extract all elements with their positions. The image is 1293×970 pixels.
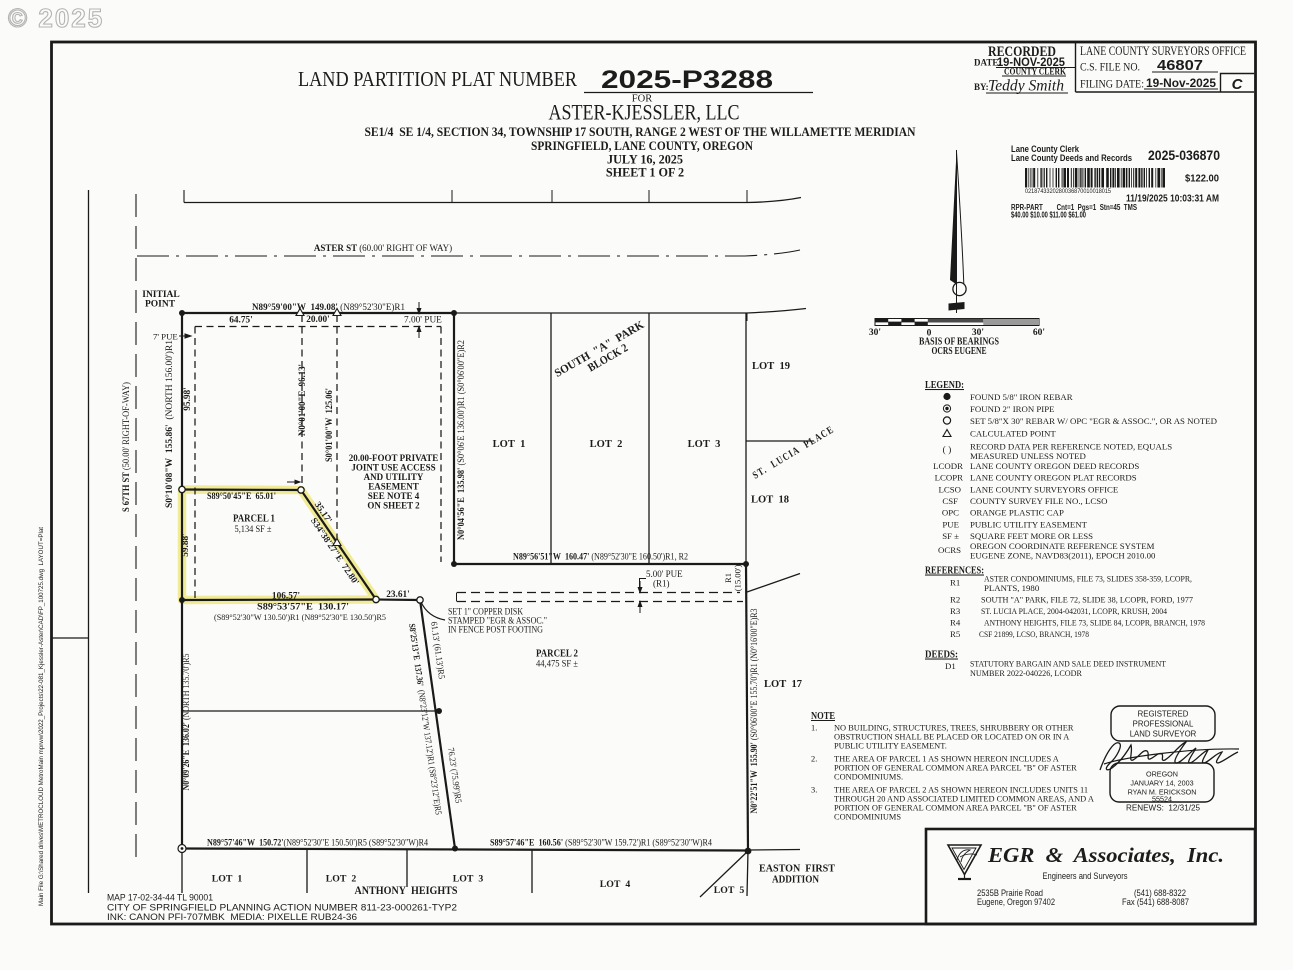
svg-text:IN FENCE POST FOOTING: IN FENCE POST FOOTING [448, 625, 543, 635]
svg-text:R5: R5 [950, 629, 961, 639]
svg-text:( ): ( ) [943, 445, 952, 456]
svg-text:OCRS: OCRS [938, 545, 961, 555]
svg-text:2.: 2. [811, 755, 817, 764]
svg-text:1.: 1. [811, 724, 817, 733]
svg-text:3.: 3. [811, 786, 817, 795]
svg-text:LANE COUNTY OREGON DEED RECORD: LANE COUNTY OREGON DEED RECORDS [970, 461, 1139, 471]
svg-text:AND UTILITY: AND UTILITY [364, 472, 424, 482]
svg-text:JANUARY 14, 2003: JANUARY 14, 2003 [1130, 779, 1193, 788]
svg-text:S34°38'27"E 72.80': S34°38'27"E 72.80' [308, 516, 361, 588]
svg-text:FOUND 5/8" IRON REBAR: FOUND 5/8" IRON REBAR [970, 392, 1073, 402]
svg-text:COUNTY SURVEY FILE NO., LCSO: COUNTY SURVEY FILE NO., LCSO [970, 496, 1107, 506]
svg-text:PORTION OF GENERAL COMMON AREA: PORTION OF GENERAL COMMON AREA PARCEL "B… [834, 804, 1077, 813]
svg-text:5,134 SF ±: 5,134 SF ± [235, 525, 272, 535]
svg-text:RENEWS: 12/31/25: RENEWS: 12/31/25 [1126, 803, 1200, 813]
svg-text:Eugene, Oregon 97402: Eugene, Oregon 97402 [977, 897, 1055, 908]
svg-text:CONDOMINIUMS.: CONDOMINIUMS. [834, 773, 903, 782]
svg-text:R1: R1 [723, 573, 733, 583]
svg-text:PLANTS, 1980: PLANTS, 1980 [984, 583, 1040, 593]
svg-text:S0°10'08"W 155.86' (NORTH 15: S0°10'08"W 155.86' (NORTH 156.00')R1 [164, 340, 175, 508]
svg-text:ANTHONY HEIGHTS: ANTHONY HEIGHTS [355, 885, 458, 897]
svg-text:LCODR: LCODR [933, 461, 963, 471]
svg-text:LANE COUNTY SURVEYORS OFFICE: LANE COUNTY SURVEYORS OFFICE [970, 484, 1118, 494]
svg-text:S89°57'46"E 160.56' (S89°52'3: S89°57'46"E 160.56' (S89°52'30"W 159.72'… [490, 838, 712, 849]
svg-text:© 2025: © 2025 [8, 3, 104, 33]
svg-text:ASTER-KJESSLER, LLC: ASTER-KJESSLER, LLC [549, 100, 740, 125]
svg-text:C.S. FILE NO.: C.S. FILE NO. [1080, 60, 1140, 74]
svg-text:FOUND 2" IRON PIPE: FOUND 2" IRON PIPE [970, 404, 1054, 414]
svg-text:N89°59'00"W 149.08' (N89°52'3: N89°59'00"W 149.08' (N89°52'30"E)R1 [252, 302, 405, 313]
svg-text:DEEDS:: DEEDS: [925, 650, 958, 661]
svg-text:20.00': 20.00' [306, 315, 330, 325]
svg-text:POINT: POINT [145, 300, 176, 310]
svg-text:SOUTH "A" PARK, FILE 72, SLIDE: SOUTH "A" PARK, FILE 72, SLIDE 38, LCOPR… [981, 595, 1194, 605]
svg-text:LAND PARTITION PLAT NUMBER: LAND PARTITION PLAT NUMBER [298, 67, 578, 91]
svg-text:$122.00: $122.00 [1185, 173, 1219, 185]
svg-text:SET 5/8"X 30" REBAR W/ OPC "EG: SET 5/8"X 30" REBAR W/ OPC "EGR & ASSOC.… [970, 416, 1217, 426]
svg-text:0218743320280036870010018015: 0218743320280036870010018015 [1025, 189, 1112, 195]
svg-text:LCOPR: LCOPR [935, 473, 963, 483]
svg-text:EASTON FIRST: EASTON FIRST [759, 864, 835, 875]
svg-text:46807: 46807 [1157, 57, 1203, 74]
svg-text:JOINT USE ACCESS: JOINT USE ACCESS [351, 463, 435, 473]
svg-text:LOT 2: LOT 2 [326, 874, 357, 885]
svg-text:R2: R2 [950, 595, 960, 605]
svg-text:2025-P3288: 2025-P3288 [601, 66, 773, 94]
svg-text:LOT 4: LOT 4 [600, 879, 631, 890]
svg-text:EUGENE ZONE, NAVD83(2011), EPO: EUGENE ZONE, NAVD83(2011), EPOCH 2010.00 [970, 550, 1156, 560]
svg-text:INITIAL: INITIAL [142, 290, 180, 300]
svg-text:N89°57'46"W 150.72'(N89°52'30: N89°57'46"W 150.72'(N89°52'30"E 150.50')… [207, 838, 428, 849]
svg-text:Engineers and Surveyors: Engineers and Surveyors [1043, 871, 1128, 881]
svg-text:NO BUILDING, STRUCTURES, TREES: NO BUILDING, STRUCTURES, TREES, SHRUBBER… [834, 724, 1074, 733]
svg-text:Teddy Smith: Teddy Smith [988, 78, 1064, 95]
svg-text:LANE COUNTY SURVEYORS OFFICE: LANE COUNTY SURVEYORS OFFICE [1080, 44, 1246, 58]
svg-text:THE AREA OF PARCEL 1 AS SHOWN: THE AREA OF PARCEL 1 AS SHOWN HEREON INC… [834, 755, 1059, 764]
svg-text:20.00-FOOT PRIVATE: 20.00-FOOT PRIVATE [349, 453, 439, 463]
svg-text:PROFESSIONAL: PROFESSIONAL [1133, 720, 1194, 729]
svg-text:SQUARE FEET MORE OR LESS: SQUARE FEET MORE OR LESS [970, 531, 1093, 541]
svg-text:SEE NOTE 4: SEE NOTE 4 [368, 491, 420, 501]
svg-text:R4: R4 [950, 618, 961, 628]
svg-text:7' PUE: 7' PUE [153, 332, 178, 342]
svg-text:BY:: BY: [974, 82, 989, 92]
svg-text:(S89°52'30"W 130.50')R1 (N89°5: (S89°52'30"W 130.50')R1 (N89°52'30"E 130… [214, 612, 387, 622]
svg-text:30': 30' [869, 328, 881, 338]
svg-text:THE AREA OF PARCEL 2 AS SHOWN: THE AREA OF PARCEL 2 AS SHOWN HEREON INC… [834, 786, 1088, 795]
svg-text:S0°01'00"W 125.06': S0°01'00"W 125.06' [324, 388, 335, 462]
svg-text:N89°56'51"W 160.47' (N89°52'3: N89°56'51"W 160.47' (N89°52'30"E 160.50'… [513, 552, 688, 563]
svg-text:59.88': 59.88' [181, 533, 191, 557]
svg-text:FILING DATE:: FILING DATE: [1080, 77, 1144, 91]
svg-text:7.00' PUE: 7.00' PUE [404, 316, 442, 326]
svg-text:S89°53'57"E 130.17': S89°53'57"E 130.17' [257, 602, 349, 613]
svg-text:LAND SURVEYOR: LAND SURVEYOR [1130, 730, 1197, 739]
svg-text:N0°09'26"E 136.02' (NORTH 135: N0°09'26"E 136.02' (NORTH 135.70')R5 [181, 653, 192, 790]
svg-text:LOT 5: LOT 5 [714, 885, 745, 896]
svg-text:CONDOMINIUMS: CONDOMINIUMS [834, 813, 901, 822]
svg-text:D1: D1 [945, 661, 956, 671]
svg-text:ADDITION: ADDITION [772, 875, 819, 886]
svg-text:N0°22'51"W 155.90' (S0°06'00": N0°22'51"W 155.90' (S0°06'00"E 155.70')R… [749, 608, 760, 813]
svg-text:LEGEND:: LEGEND: [925, 380, 964, 391]
svg-text:PUE: PUE [942, 519, 959, 529]
svg-text:LOT 3: LOT 3 [453, 874, 484, 885]
svg-text:LOT 3: LOT 3 [688, 439, 721, 450]
svg-text:76.23' (75.99')R5: 76.23' (75.99')R5 [446, 747, 464, 804]
svg-text:OBSTRUCTION SHALL BE PLACED OR: OBSTRUCTION SHALL BE PLACED OR LOCATED O… [834, 733, 1069, 742]
svg-text:2025-036870: 2025-036870 [1148, 148, 1220, 163]
svg-text:R3: R3 [950, 606, 961, 616]
svg-text:ASTER ST (60.00' RIGHT OF WAY): ASTER ST (60.00' RIGHT OF WAY) [314, 243, 452, 253]
svg-text:ST. LUCIA PLACE, 2004-042031,: ST. LUCIA PLACE, 2004-042031, LCOPR, KRU… [981, 606, 1168, 616]
svg-text:PUBLIC UTILITY EASEMENT.: PUBLIC UTILITY EASEMENT. [834, 742, 947, 751]
svg-text:61.13' (61.13')R5: 61.13' (61.13')R5 [429, 621, 447, 680]
svg-text:SOUTH "A" PARK: SOUTH "A" PARK [553, 319, 647, 380]
svg-text:THROUGH 20 AND ASSOCIATED LIMI: THROUGH 20 AND ASSOCIATED LIMITED COMMON… [834, 795, 1094, 804]
svg-text:LOT 2: LOT 2 [590, 439, 623, 450]
svg-text:ANTHONY HEIGHTS, FILE 73, SLID: ANTHONY HEIGHTS, FILE 73, SLIDE 84, LCOP… [984, 618, 1206, 628]
svg-text:CITY OF SPRINGFIELD PLANNING A: CITY OF SPRINGFIELD PLANNING ACTION NUMB… [107, 903, 457, 913]
svg-text:NUMBER 2022-040226, LCODR: NUMBER 2022-040226, LCODR [970, 668, 1082, 678]
svg-text:OREGON: OREGON [1146, 770, 1178, 779]
svg-text:Lane County Deeds and Records: Lane County Deeds and Records [1011, 153, 1132, 164]
svg-text:S 67TH ST (50.00' RIGHT-OF-WAY: S 67TH ST (50.00' RIGHT-OF-WAY) [121, 382, 132, 512]
svg-text:N0°04'56"E 135.98' (S0°06'E 1: N0°04'56"E 135.98' (S0°06'E 136.00')R1 (… [456, 340, 467, 540]
svg-text:LOT 19: LOT 19 [752, 361, 790, 372]
svg-text:EGR & Associates, Inc.: EGR & Associates, Inc. [987, 843, 1224, 867]
svg-text:23.61': 23.61' [386, 590, 410, 600]
svg-text:$40.00 $10.00 $11.00 $61.00: $40.00 $10.00 $11.00 $61.00 [1011, 211, 1086, 220]
svg-text:19-Nov-2025: 19-Nov-2025 [1146, 78, 1217, 90]
svg-text:LOT 18: LOT 18 [751, 495, 789, 506]
svg-text:ORANGE PLASTIC CAP: ORANGE PLASTIC CAP [970, 508, 1064, 518]
svg-text:CALCULATED POINT: CALCULATED POINT [970, 429, 1056, 439]
svg-text:LOT 1: LOT 1 [212, 874, 243, 885]
svg-text:SPRINGFIELD, LANE COUNTY, OREG: SPRINGFIELD, LANE COUNTY, OREGON [531, 139, 753, 153]
svg-text:CSF 21899, LCSO, BRANCH, 1978: CSF 21899, LCSO, BRANCH, 1978 [979, 629, 1090, 639]
svg-text:R1: R1 [950, 578, 960, 588]
svg-text:64.75': 64.75' [229, 316, 253, 326]
svg-text:N0°01'00"E 96.13': N0°01'00"E 96.13' [297, 364, 308, 436]
svg-text:INK: CANON PFI-707MBK MEDIA:: INK: CANON PFI-707MBK MEDIA: PIXELLE RUB… [107, 912, 357, 922]
svg-text:(15.00'): (15.00') [733, 565, 743, 592]
svg-text:SHEET 1 OF 2: SHEET 1 OF 2 [606, 166, 684, 180]
svg-text:JULY 16, 2025: JULY 16, 2025 [607, 153, 683, 167]
svg-text:S89°50'45"E 65.01': S89°50'45"E 65.01' [207, 491, 276, 502]
svg-text:ON SHEET 2: ON SHEET 2 [367, 501, 420, 511]
svg-text:60': 60' [1033, 328, 1045, 338]
svg-text:NOTE: NOTE [811, 711, 835, 722]
svg-text:PARCEL 1: PARCEL 1 [233, 514, 275, 525]
svg-text:CSF: CSF [942, 496, 958, 506]
svg-text:5.00' PUE: 5.00' PUE [646, 569, 683, 579]
svg-text:EASEMENT: EASEMENT [368, 482, 419, 492]
svg-text:SE1/4 SE 1/4, SECTION 34, TOW: SE1/4 SE 1/4, SECTION 34, TOWNSHIP 17 SO… [365, 125, 916, 139]
svg-text:LOT 1: LOT 1 [493, 439, 526, 450]
svg-text:ST. LUCIA PLACE: ST. LUCIA PLACE [751, 424, 836, 481]
svg-text:REFERENCES:: REFERENCES: [925, 566, 984, 577]
svg-text:OCRS EUGENE: OCRS EUGENE [932, 346, 987, 357]
svg-text:SF ±: SF ± [942, 531, 959, 541]
svg-text:PUBLIC UTILITY EASEMENT: PUBLIC UTILITY EASEMENT [970, 519, 1088, 529]
svg-text:REGISTERED: REGISTERED [1138, 710, 1189, 719]
svg-text:MAP 17-02-34-44 TL 90001: MAP 17-02-34-44 TL 90001 [107, 893, 213, 903]
svg-text:Main File G:\Shared drives\MET: Main File G:\Shared drives\METROCLOUD Me… [38, 527, 45, 906]
svg-text:PORTION OF GENERAL COMMON AREA: PORTION OF GENERAL COMMON AREA PARCEL "B… [834, 764, 1077, 773]
svg-text:C: C [1232, 76, 1244, 93]
svg-text:95.98': 95.98' [183, 387, 193, 411]
svg-text:11/19/2025 10:03:31 AM: 11/19/2025 10:03:31 AM [1126, 194, 1219, 205]
svg-text:44,475 SF ±: 44,475 SF ± [536, 660, 578, 670]
svg-text:106.57': 106.57' [272, 592, 300, 602]
svg-text:LANE COUNTY OREGON PLAT RECORD: LANE COUNTY OREGON PLAT RECORDS [970, 473, 1137, 483]
svg-text:LOT 17: LOT 17 [764, 679, 802, 690]
svg-text:OPC: OPC [942, 508, 959, 518]
svg-text:(R1): (R1) [653, 579, 670, 589]
svg-text:Fax (541) 688-8087: Fax (541) 688-8087 [1122, 897, 1189, 908]
svg-text:LCSO: LCSO [939, 484, 962, 494]
svg-text:PARCEL 2: PARCEL 2 [536, 649, 578, 660]
svg-text:MEASURED UNLESS NOTED: MEASURED UNLESS NOTED [970, 451, 1086, 461]
